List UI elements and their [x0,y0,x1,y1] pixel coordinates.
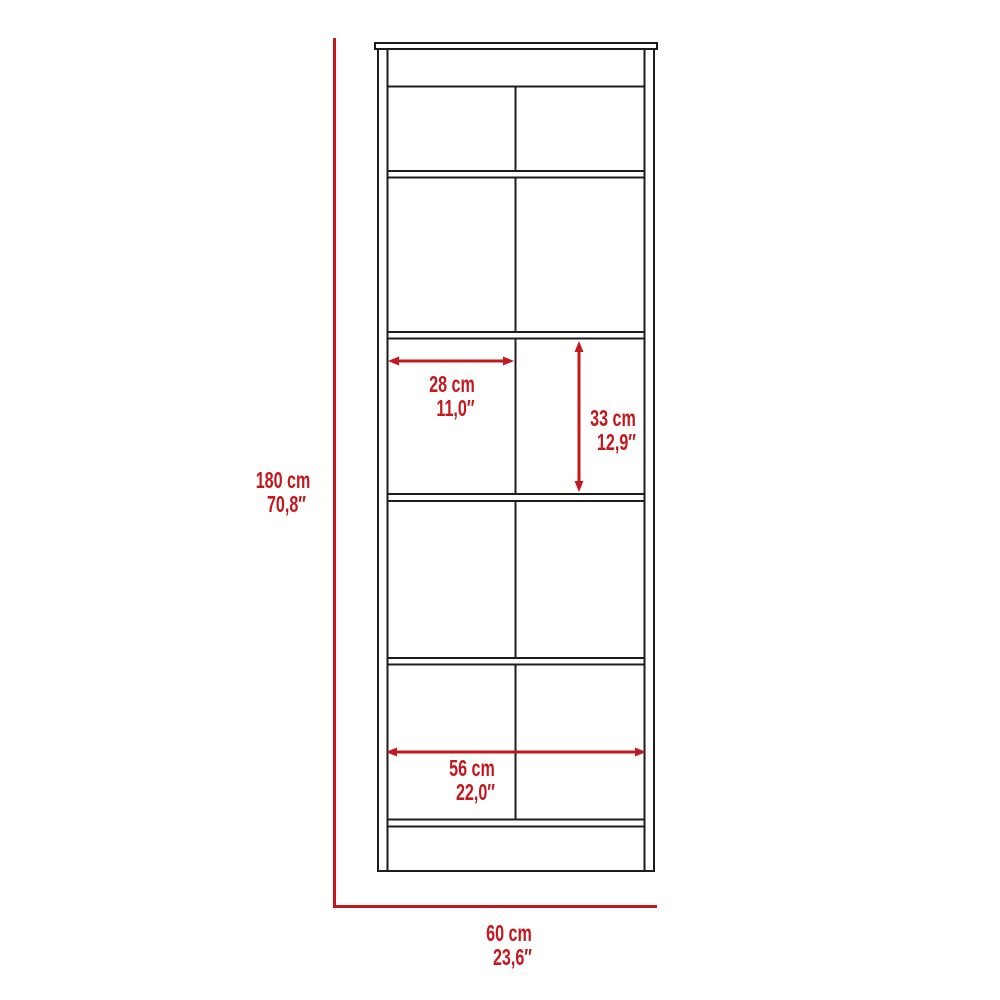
overall-height-cm: 180 cm [234,468,332,492]
cabinet-shelf-2 [388,332,645,339]
overall-width-inch: 23,6″ [460,945,558,969]
overall-height-inch: 70,8″ [234,492,332,516]
cabinet-shelf-4 [388,658,645,665]
interior-width-label: 56 cm 22,0″ [423,756,521,804]
cabinet-outline [375,43,657,871]
shelf-height-inch: 12,9″ [564,430,662,454]
shelf-height-cm: 33 cm [564,406,662,430]
overall-width-label: 60 cm 23,6″ [460,921,558,969]
shelf-width-cm: 28 cm [403,372,501,396]
cabinet-shelf-3 [388,494,645,501]
shelf-height-label: 33 cm 12,9″ [564,406,662,454]
shelf-width-inch: 11,0″ [403,396,501,420]
cabinet-shelf-1 [388,171,645,178]
overall-width-cm: 60 cm [460,921,558,945]
cabinet-line-art [0,0,1000,1000]
interior-width-inch: 22,0″ [423,780,521,804]
dimension-diagram: 180 cm 70,8″ 28 cm 11,0″ 33 cm 12,9″ 56 … [0,0,1000,1000]
interior-width-cm: 56 cm [423,756,521,780]
cabinet-right-panel [645,49,655,871]
shelf-width-arrow [388,357,514,366]
cabinet-left-panel [378,49,388,871]
shelf-width-label: 28 cm 11,0″ [403,372,501,420]
cabinet-shelf-5 [388,820,645,827]
overall-height-label: 180 cm 70,8″ [234,468,332,516]
cabinet-top-cap [375,43,657,49]
